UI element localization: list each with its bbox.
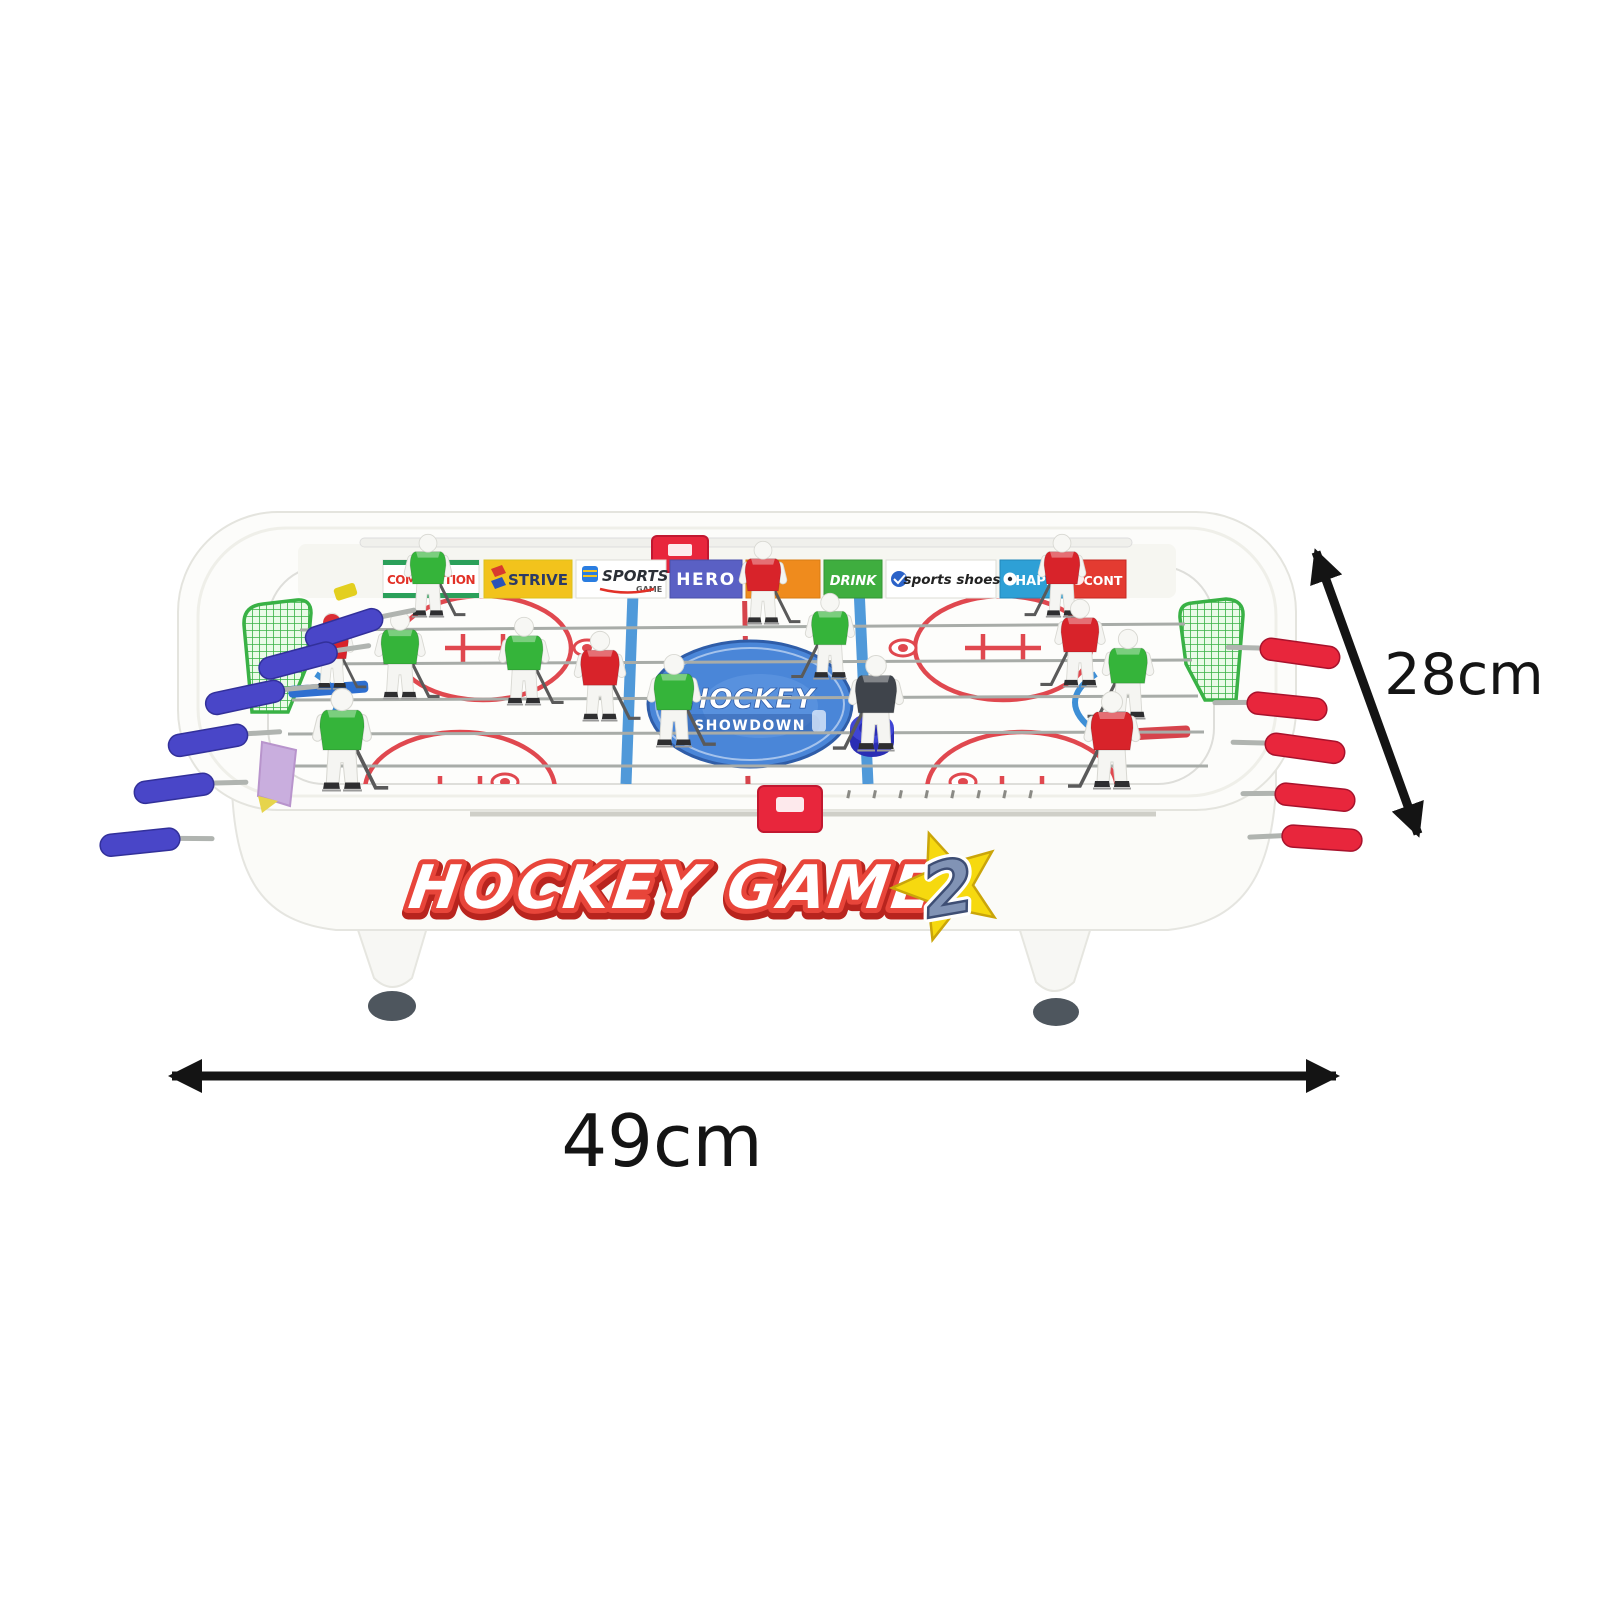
banner-drink: DRINK (824, 560, 882, 598)
banner-drink-label: DRINK (830, 574, 878, 589)
leg-left (356, 924, 428, 1021)
depth-label: 28cm (1384, 642, 1543, 708)
foot-left (368, 991, 416, 1021)
center-logo-player-glyph (812, 710, 826, 732)
control-handle-red (1274, 782, 1356, 812)
front-logo-text: HOCKEY GAME (405, 853, 941, 923)
width-label: 49cm (561, 1099, 762, 1183)
product-photo-tabletop-hockey: HOCKEY SHOWDOWN COMPETITION (0, 0, 1600, 1600)
banner-shoes-label: sports shoes (904, 572, 1001, 588)
corner-card (258, 742, 296, 806)
top-slider-rail (360, 538, 1132, 547)
control-handle-red (1281, 824, 1362, 852)
banner-sports-label: SPORTS (602, 567, 668, 585)
banner-hero-label: HERO (676, 570, 735, 590)
banner-strive-label: STRIVE (508, 571, 568, 589)
banner-sports-shoes: sports shoes (886, 560, 1000, 598)
control-handle-blue (99, 827, 181, 857)
leg-right (1018, 924, 1092, 1026)
banner-contest-label: CONT (1084, 573, 1123, 588)
control-handle-blue (133, 772, 215, 805)
foot-right (1033, 998, 1079, 1026)
sports-logo-icon (582, 566, 598, 582)
happy-ball-dot (1008, 577, 1012, 581)
hockey-table: HOCKEY SHOWDOWN COMPETITION (99, 512, 1363, 1026)
bottom-slider (758, 786, 822, 832)
banner-sports-game: SPORTS GAME (576, 560, 668, 598)
banner-strive: STRIVE (484, 560, 572, 598)
banner-hero: HERO (670, 560, 742, 598)
